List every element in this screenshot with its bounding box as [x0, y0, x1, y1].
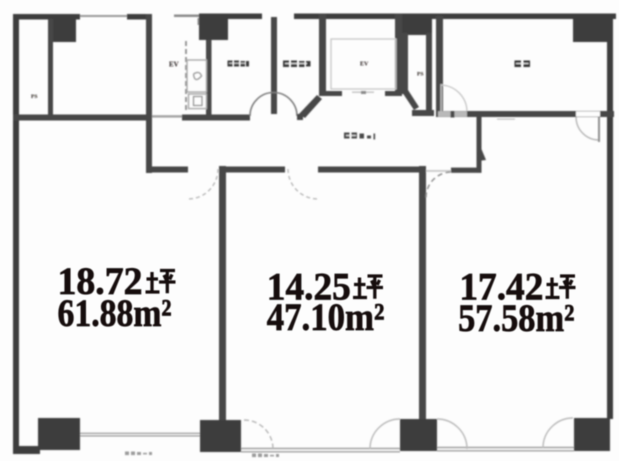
svg-text:47.10m²: 47.10m²	[267, 296, 385, 339]
svg-text:EV: EV	[169, 61, 179, 69]
svg-text:EV: EV	[360, 62, 369, 68]
svg-text:PS: PS	[417, 72, 423, 78]
svg-text:57.58m²: 57.58m²	[458, 297, 574, 340]
svg-text:PS: PS	[31, 94, 37, 100]
svg-text:61.88m²: 61.88m²	[58, 292, 172, 335]
